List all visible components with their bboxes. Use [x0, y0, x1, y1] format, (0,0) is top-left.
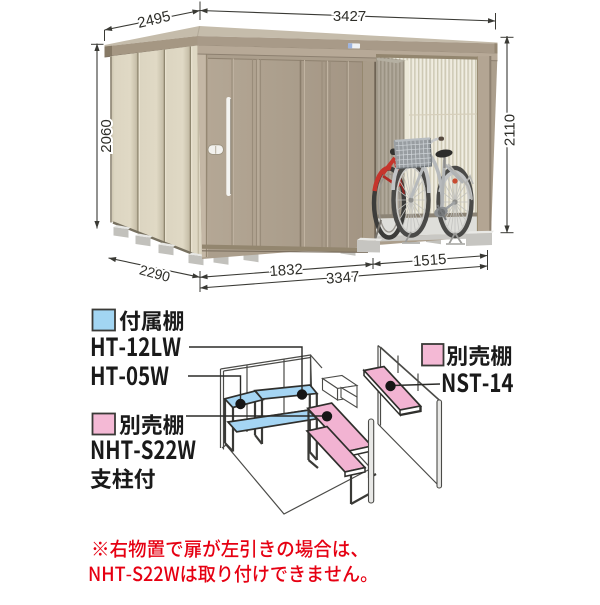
svg-text:2110: 2110 — [502, 114, 519, 146]
svg-text:1832: 1832 — [269, 261, 303, 280]
svg-text:3427: 3427 — [333, 8, 366, 25]
svg-text:3347: 3347 — [325, 268, 359, 287]
svg-text:1515: 1515 — [412, 251, 446, 270]
svg-text:2060: 2060 — [98, 119, 115, 152]
